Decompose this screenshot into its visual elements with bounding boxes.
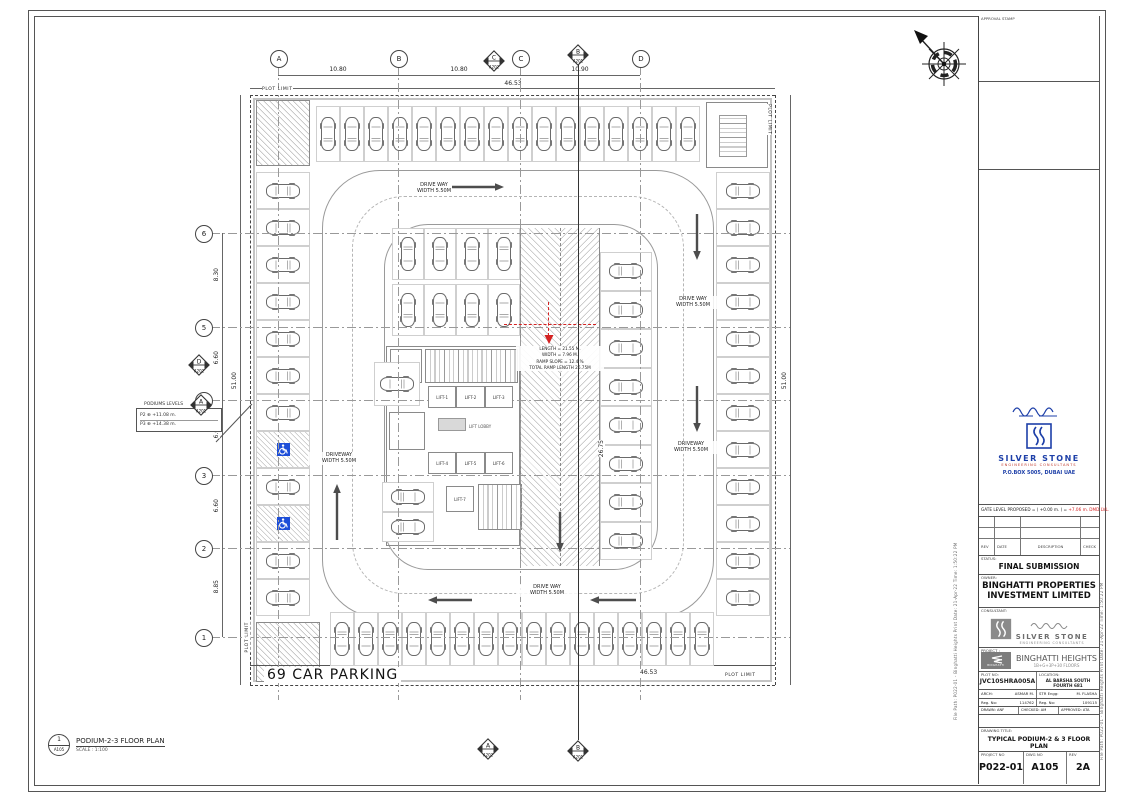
- car-icon: [463, 236, 481, 272]
- svg-text:A202: A202: [489, 64, 500, 69]
- car-icon: [429, 621, 447, 657]
- lift-4: LIFT-4: [428, 452, 456, 474]
- svg-text:C: C: [492, 54, 496, 61]
- plot-limit-label: PLOT LIMIT: [246, 622, 251, 653]
- car-icon: [265, 404, 301, 422]
- parking-stall: [716, 431, 770, 468]
- grid-bubble-2: 2: [195, 540, 213, 558]
- consultant-row: CONSULTANT: SILVER STONE ENGINEERING CON…: [979, 608, 1099, 648]
- car-icon: [265, 330, 301, 348]
- red-arrow-icon: [543, 334, 555, 344]
- plot-no-value: JVC10SHRA005A: [979, 678, 1036, 685]
- consultant-logo-icon: [990, 618, 1012, 640]
- silverstone-logo-icon: [1026, 423, 1052, 449]
- arch-label: ARCH:: [981, 691, 993, 697]
- driveway-label: DRIVE WAYWIDTH 5.50M: [403, 182, 465, 195]
- driveway-label-line: WIDTH 5.50M: [517, 590, 577, 596]
- parking-stall: [556, 106, 580, 162]
- view-number: 1: [49, 735, 69, 746]
- car-icon: [343, 116, 361, 152]
- parking-stall: [716, 320, 770, 357]
- drawing-sheet: File Path: P022-01 - Binghatti Heights P…: [0, 0, 1132, 800]
- car-icon: [645, 621, 663, 657]
- rev-cell: [995, 527, 1021, 538]
- section-marker-icon: AA202: [477, 738, 499, 760]
- svg-text:B: B: [576, 744, 580, 751]
- parking-stall: [716, 505, 770, 542]
- parking-stall: [600, 522, 652, 561]
- svg-text:D: D: [197, 358, 202, 365]
- rev-cell: [979, 517, 995, 527]
- car-icon: [319, 116, 337, 152]
- parking-stall: [570, 612, 594, 666]
- car-icon: [525, 621, 543, 657]
- lift-1: LIFT-1: [428, 386, 456, 408]
- parking-stall: [652, 106, 676, 162]
- rev-cell: [979, 527, 995, 538]
- car-icon: [549, 621, 567, 657]
- gate-level-text: GATE LEVEL PROPOSED = ( +0.00 m. ) =: [981, 507, 1068, 512]
- car-icon: [265, 293, 301, 311]
- column-dimension: 10.80: [328, 67, 347, 73]
- car-icon: [693, 621, 711, 657]
- section-marker-B: BA201: [567, 740, 589, 762]
- stamp-box-2: [979, 82, 1099, 170]
- car-icon: [573, 621, 591, 657]
- parking-stall: [488, 228, 520, 280]
- reg2-label: Reg. No:: [1039, 700, 1055, 705]
- title-block: APPROVAL STAMP SILVER STONE ENGINEERING …: [978, 16, 1099, 784]
- parking-stall: [402, 612, 426, 666]
- grid-line-1: [211, 637, 790, 638]
- blank-row: [979, 715, 1099, 728]
- plot-limit-label: PLOT LIMIT: [766, 104, 771, 135]
- plot-location-row: PLOT NO: JVC10SHRA005A LOCATION: AL BARS…: [979, 672, 1099, 690]
- car-icon: [439, 116, 457, 152]
- driveway-label: DRIVEWAYWIDTH 5.50M: [660, 441, 722, 454]
- approval-stamp-box: APPROVAL STAMP: [979, 16, 1099, 82]
- plot-limit-label: PLOT LIMIT: [725, 674, 756, 679]
- car-icon: [367, 116, 385, 152]
- drawn-label: DRAWN:: [981, 708, 996, 712]
- parking-stall: [594, 612, 618, 666]
- binghatti-logo-text: BINGHATTI: [987, 664, 1005, 667]
- grid-bubble-A: A: [270, 50, 288, 68]
- view-scale: SCALE : 1:100: [76, 748, 165, 753]
- grid-bubble-5: 5: [195, 319, 213, 337]
- section-marker-icon: CA202: [483, 50, 505, 72]
- parking-stall: [256, 246, 310, 283]
- rev-cell: [1021, 527, 1081, 538]
- ramp-length-dim: 26.75: [598, 440, 605, 457]
- parking-stall: [436, 106, 460, 162]
- car-icon: [725, 367, 761, 385]
- parking-stall: [256, 283, 310, 320]
- car-icon: [265, 478, 301, 496]
- checked-label: CHECKED:: [1021, 708, 1040, 712]
- driveway-label-line: WIDTH 5.50M: [404, 188, 464, 194]
- arabic-script-decoration: [1029, 621, 1075, 629]
- car-icon: [453, 621, 471, 657]
- stamp-box-3: [979, 170, 1099, 398]
- parking-stall: [676, 106, 700, 162]
- parking-stall: [340, 106, 364, 162]
- parking-stall: [600, 483, 652, 522]
- parking-stall: [388, 106, 412, 162]
- reg-row: Reg. No:114762 Reg. No:109115: [979, 699, 1099, 707]
- parking-stall: [600, 291, 652, 330]
- parking-stall: [354, 612, 378, 666]
- rev-cell: [1081, 517, 1099, 527]
- car-icon: [391, 116, 409, 152]
- revision-table: REV DATE DESCRIPTION CHECK: [979, 517, 1099, 556]
- parking-stall: [600, 252, 652, 291]
- parking-stall: [474, 612, 498, 666]
- stamp-name: SILVER STONE: [979, 454, 1099, 463]
- parking-stall: [316, 106, 340, 162]
- car-icon: [265, 256, 301, 274]
- driveway-label-line: WIDTH 5.50M: [309, 458, 369, 464]
- parking-stall: [690, 612, 714, 666]
- car-icon: [725, 515, 761, 533]
- section-marker-B: BA201: [567, 44, 589, 66]
- car-icon: [725, 589, 761, 607]
- parking-stall: [450, 612, 474, 666]
- parking-stall: [382, 512, 434, 542]
- grid-line-5: [211, 327, 790, 328]
- edge-note-right: File Path: P022-01 - Binghatti Heights P…: [1099, 200, 1104, 760]
- car-icon: [390, 488, 426, 506]
- parking-stall: [618, 612, 642, 666]
- lift-7: LIFT-7: [446, 486, 474, 512]
- grid-line-A: [278, 66, 279, 700]
- svg-text:A201: A201: [196, 408, 207, 413]
- parking-stall: [256, 320, 310, 357]
- parking-stall: [392, 228, 424, 280]
- parking-stall: [256, 209, 310, 246]
- parking-stall: [426, 612, 450, 666]
- date-header: DATE: [995, 538, 1021, 555]
- grid-bubble-3: 3: [195, 467, 213, 485]
- project-name: BINGHATTI HEIGHTS: [1016, 654, 1097, 663]
- section-marker-icon: BA201: [567, 740, 589, 762]
- ramp-note: LENGTH = 21.55 M. WIDTH = 7.96 M. RAMP S…: [516, 346, 604, 371]
- driveway-label: DRIVE WAYWIDTH 5.50M: [662, 296, 724, 309]
- parking-stall: [532, 106, 556, 162]
- car-icon: [669, 621, 687, 657]
- project-sub: 1B+G+3P+30 FLOORS: [1016, 663, 1097, 668]
- owner-row: OWNER: BINGHATTI PROPERTIES INVESTMENT L…: [979, 575, 1099, 608]
- reg1-value: 114762: [1020, 700, 1035, 705]
- car-icon: [415, 116, 433, 152]
- parking-stall: [522, 612, 546, 666]
- project-row: PROJECT : BINGHATTI BINGHATTI HEIGHTS 1B…: [979, 648, 1099, 672]
- parking-stall: [546, 612, 570, 666]
- svg-text:A202: A202: [194, 368, 205, 373]
- location-value: AL BARSHA SOUTH FOURTH 681: [1037, 678, 1099, 688]
- view-title-block: 1 A105 PODIUM-2-3 FLOOR PLAN SCALE : 1:1…: [48, 734, 165, 756]
- drawing-title-value: TYPICAL PODIUM-2 & 3 FLOOR PLAN: [979, 736, 1099, 750]
- parking-stall: [716, 283, 770, 320]
- car-icon: [725, 404, 761, 422]
- car-icon: [405, 621, 423, 657]
- rev-label: REV: [1067, 752, 1099, 758]
- view-title: PODIUM-2-3 FLOOR PLAN: [76, 737, 165, 747]
- section-marker-C: CA202: [483, 50, 505, 72]
- parking-stall: [604, 106, 628, 162]
- lift-3: LIFT-3: [485, 386, 513, 408]
- car-icon: [583, 116, 601, 152]
- car-icon: [381, 621, 399, 657]
- dwg-no-value: A105: [1024, 762, 1066, 773]
- parking-stall: [256, 172, 310, 209]
- grid-line-3: [211, 475, 790, 476]
- car-icon: [495, 292, 513, 328]
- check-header: CHECK: [1081, 538, 1099, 555]
- car-icon: [608, 493, 644, 511]
- section-line: [578, 63, 579, 740]
- parking-stall: [460, 106, 484, 162]
- driveway-label-line: WIDTH 5.50M: [661, 447, 721, 453]
- car-icon: [487, 116, 505, 152]
- grid-line-2: [211, 548, 790, 549]
- svg-text:A201: A201: [573, 754, 584, 759]
- stamp-sub: ENGINEERING CONSULTANTS: [979, 463, 1099, 467]
- dwg-no-label: DWG NO: [1024, 752, 1066, 758]
- column-dimension: 10.90: [570, 67, 589, 73]
- parking-stall: [256, 468, 310, 505]
- svg-text:A201: A201: [573, 58, 584, 63]
- arch-str-row: ARCH:ASMAR M. STR Engg:M. FLASHA: [979, 690, 1099, 699]
- section-marker-icon: BA201: [567, 44, 589, 66]
- car-icon: [597, 621, 615, 657]
- row-dimension: 8.30: [214, 268, 220, 281]
- car-icon: [607, 116, 625, 152]
- row-dimension: 6.60: [214, 499, 220, 512]
- drawing-title-label: DRAWING TITLE:: [979, 728, 1099, 734]
- parking-stall: [642, 612, 666, 666]
- car-icon: [333, 621, 351, 657]
- plot-limit-label: PLOT LIMIT: [262, 88, 293, 93]
- red-centerline-v: [548, 302, 549, 336]
- car-icon: [608, 416, 644, 434]
- parking-stall: [364, 106, 388, 162]
- car-icon: [608, 301, 644, 319]
- car-icon: [608, 378, 644, 396]
- grid-bubble-C: C: [512, 50, 530, 68]
- project-label: PROJECT :: [979, 648, 1002, 654]
- parking-stall: [498, 612, 522, 666]
- checked-value: AM: [1041, 708, 1047, 712]
- parking-stall: [716, 579, 770, 616]
- car-icon: [399, 292, 417, 328]
- parking-stall: [716, 246, 770, 283]
- section-marker-icon: AA201: [190, 394, 212, 416]
- parking-stall: [600, 406, 652, 445]
- parking-stall: [256, 579, 310, 616]
- approval-stamp-label: APPROVAL STAMP: [979, 16, 1099, 22]
- car-icon: [679, 116, 697, 152]
- description-header: DESCRIPTION: [1021, 538, 1081, 555]
- car-icon: [608, 339, 644, 357]
- consultant-sub: ENGINEERING CONSULTANTS: [1016, 641, 1088, 645]
- car-icon: [265, 552, 301, 570]
- accessible-parking-stall: [256, 431, 310, 468]
- owner-value: BINGHATTI PROPERTIES INVESTMENT LIMITED: [979, 581, 1099, 602]
- grid-line-B: [398, 66, 399, 700]
- grid-line-6: [211, 233, 790, 234]
- parking-stall: [424, 284, 456, 336]
- car-parking-caption: 69 CAR PARKING: [264, 667, 401, 683]
- status-value: FINAL SUBMISSION: [979, 562, 1099, 571]
- parking-stall: [456, 228, 488, 280]
- grid-bubble-B: B: [390, 50, 408, 68]
- rev-cell: [1081, 527, 1099, 538]
- lift-6: LIFT-6: [485, 452, 513, 474]
- parking-stall: [716, 357, 770, 394]
- car-icon: [477, 621, 495, 657]
- project-no-label: PROJECT NO: [979, 752, 1023, 758]
- parking-stall: [716, 172, 770, 209]
- status-row: STATUS: FINAL SUBMISSION: [979, 556, 1099, 575]
- parking-stall: [424, 228, 456, 280]
- driveway-label: DRIVE WAYWIDTH 5.50M: [516, 584, 578, 597]
- car-icon: [725, 293, 761, 311]
- grid-line-C: [520, 66, 521, 700]
- driveway-label-line: WIDTH 5.50M: [663, 302, 723, 308]
- driveway-label: DRIVEWAYWIDTH 5.50M: [308, 452, 370, 465]
- number-row: PROJECT NO P022-01 DWG NO A105 REV 2A: [979, 752, 1099, 784]
- gate-level-row: GATE LEVEL PROPOSED = ( +0.00 m. ) = +7.…: [979, 505, 1099, 517]
- car-icon: [501, 621, 519, 657]
- podium-level-line: P3 ⊕ +14.38 m.: [140, 421, 218, 429]
- car-icon: [265, 367, 301, 385]
- car-icon: [621, 621, 639, 657]
- row-dimension: 6.60: [214, 351, 220, 364]
- parking-stall: [456, 284, 488, 336]
- grid-bubble-6: 6: [195, 225, 213, 243]
- car-icon: [725, 478, 761, 496]
- ramp-note-line: TOTAL RAMP LENGTH 26.75M: [516, 365, 604, 371]
- view-sheet: A105: [49, 746, 69, 754]
- parking-stall: [330, 612, 354, 666]
- parking-stall: [392, 284, 424, 336]
- grid-bubble-D: D: [632, 50, 650, 68]
- arch-value: ASMAR M.: [1015, 691, 1034, 697]
- drawn-value: ANF: [997, 708, 1004, 712]
- car-icon: [463, 116, 481, 152]
- red-centerline-h: [504, 324, 596, 325]
- parking-stall: [256, 357, 310, 394]
- gate-level-red: +7.06 m. DMD LVL.: [1068, 507, 1109, 512]
- parking-stall: [580, 106, 604, 162]
- parking-stall: [600, 329, 652, 368]
- floor-plan: PLOT LIMIT PLOT LIMIT PLOT LIMIT PLOT LI…: [0, 0, 978, 800]
- parking-stall: [412, 106, 436, 162]
- approved-label: APPROVED:: [1061, 708, 1082, 712]
- str-label: STR Engg:: [1039, 691, 1058, 697]
- car-icon: [725, 552, 761, 570]
- car-icon: [725, 441, 761, 459]
- parking-stall: [716, 468, 770, 505]
- car-icon: [608, 262, 644, 280]
- car-icon: [559, 116, 577, 152]
- car-icon: [431, 236, 449, 272]
- rev-cell: [995, 517, 1021, 527]
- rev-header: REV: [979, 538, 995, 555]
- section-marker-A: AA202: [477, 738, 499, 760]
- car-icon: [431, 292, 449, 328]
- car-icon: [655, 116, 673, 152]
- car-icon: [495, 236, 513, 272]
- parking-stall: [716, 209, 770, 246]
- grid-bubble-1: 1: [195, 629, 213, 647]
- rev-value: 2A: [1067, 762, 1099, 773]
- reg2-value: 109115: [1083, 700, 1098, 705]
- overall-width-dim-bottom: 46.53: [640, 669, 657, 676]
- parking-stall: [484, 106, 508, 162]
- svg-text:A202: A202: [483, 752, 494, 757]
- rev-cell: [1021, 517, 1081, 527]
- row-dimension: 8.85: [214, 580, 220, 593]
- section-marker-D: DA202: [188, 354, 210, 376]
- arabic-script-decoration: [1009, 404, 1069, 418]
- parking-stall: [666, 612, 690, 666]
- accessible-parking-stall: [256, 505, 310, 542]
- consultant-stamp: SILVER STONE ENGINEERING CONSULTANTS P.O…: [979, 398, 1099, 505]
- car-icon: [535, 116, 553, 152]
- str-value: M. FLASHA: [1076, 691, 1097, 697]
- parking-stall: [600, 445, 652, 484]
- car-icon: [725, 256, 761, 274]
- car-icon: [725, 330, 761, 348]
- generated-layer: ABCD65432110.8010.8010.908.306.606.606.6…: [0, 0, 978, 800]
- project-no-value: P022-01: [979, 762, 1023, 773]
- svg-text:B: B: [576, 48, 580, 55]
- view-number-bubble: 1 A105: [48, 734, 70, 756]
- car-icon: [265, 182, 301, 200]
- reg1-label: Reg. No:: [981, 700, 997, 705]
- car-icon: [399, 236, 417, 272]
- drawn-row: DRAWN: ANF CHECKED: AM APPROVED: ATA: [979, 707, 1099, 715]
- car-icon: [265, 589, 301, 607]
- approved-value: ATA: [1083, 708, 1090, 712]
- car-icon: [463, 292, 481, 328]
- grid-line-D: [640, 66, 641, 700]
- car-icon: [390, 518, 426, 536]
- column-dimension: 10.80: [449, 67, 468, 73]
- car-icon: [725, 182, 761, 200]
- section-marker-A: AA201: [190, 394, 212, 416]
- car-icon: [379, 375, 415, 393]
- lift-2: LIFT-2: [456, 386, 484, 408]
- consultant-name: SILVER STONE: [1016, 633, 1088, 641]
- binghatti-logo: BINGHATTI: [981, 652, 1011, 669]
- car-icon: [357, 621, 375, 657]
- section-marker-icon: DA202: [188, 354, 210, 376]
- car-icon: [608, 455, 644, 473]
- lift-5: LIFT-5: [456, 452, 484, 474]
- drawing-title-row: DRAWING TITLE: TYPICAL PODIUM-2 & 3 FLOO…: [979, 728, 1099, 752]
- stamp-pobox: P.O.BOX 5005, DUBAI UAE: [979, 470, 1099, 476]
- parking-stall: [382, 482, 434, 512]
- parking-stall: [488, 284, 520, 336]
